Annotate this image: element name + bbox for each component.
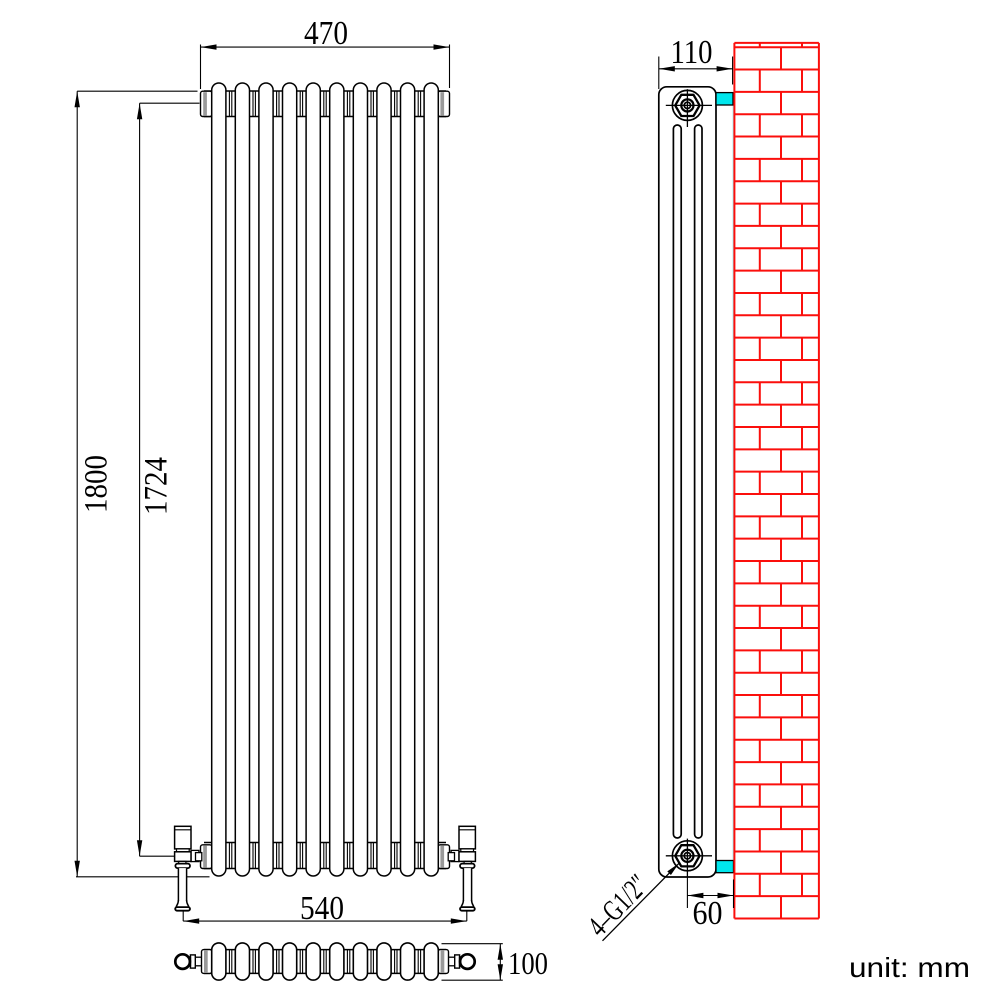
svg-text:60: 60 [693,895,723,932]
svg-text:110: 110 [671,34,713,71]
svg-text:100: 100 [508,945,548,981]
svg-text:unit: mm: unit: mm [849,952,970,983]
svg-text:470: 470 [304,15,348,52]
svg-text:540: 540 [300,890,344,927]
svg-text:1724: 1724 [139,457,175,515]
svg-text:1800: 1800 [79,455,115,513]
